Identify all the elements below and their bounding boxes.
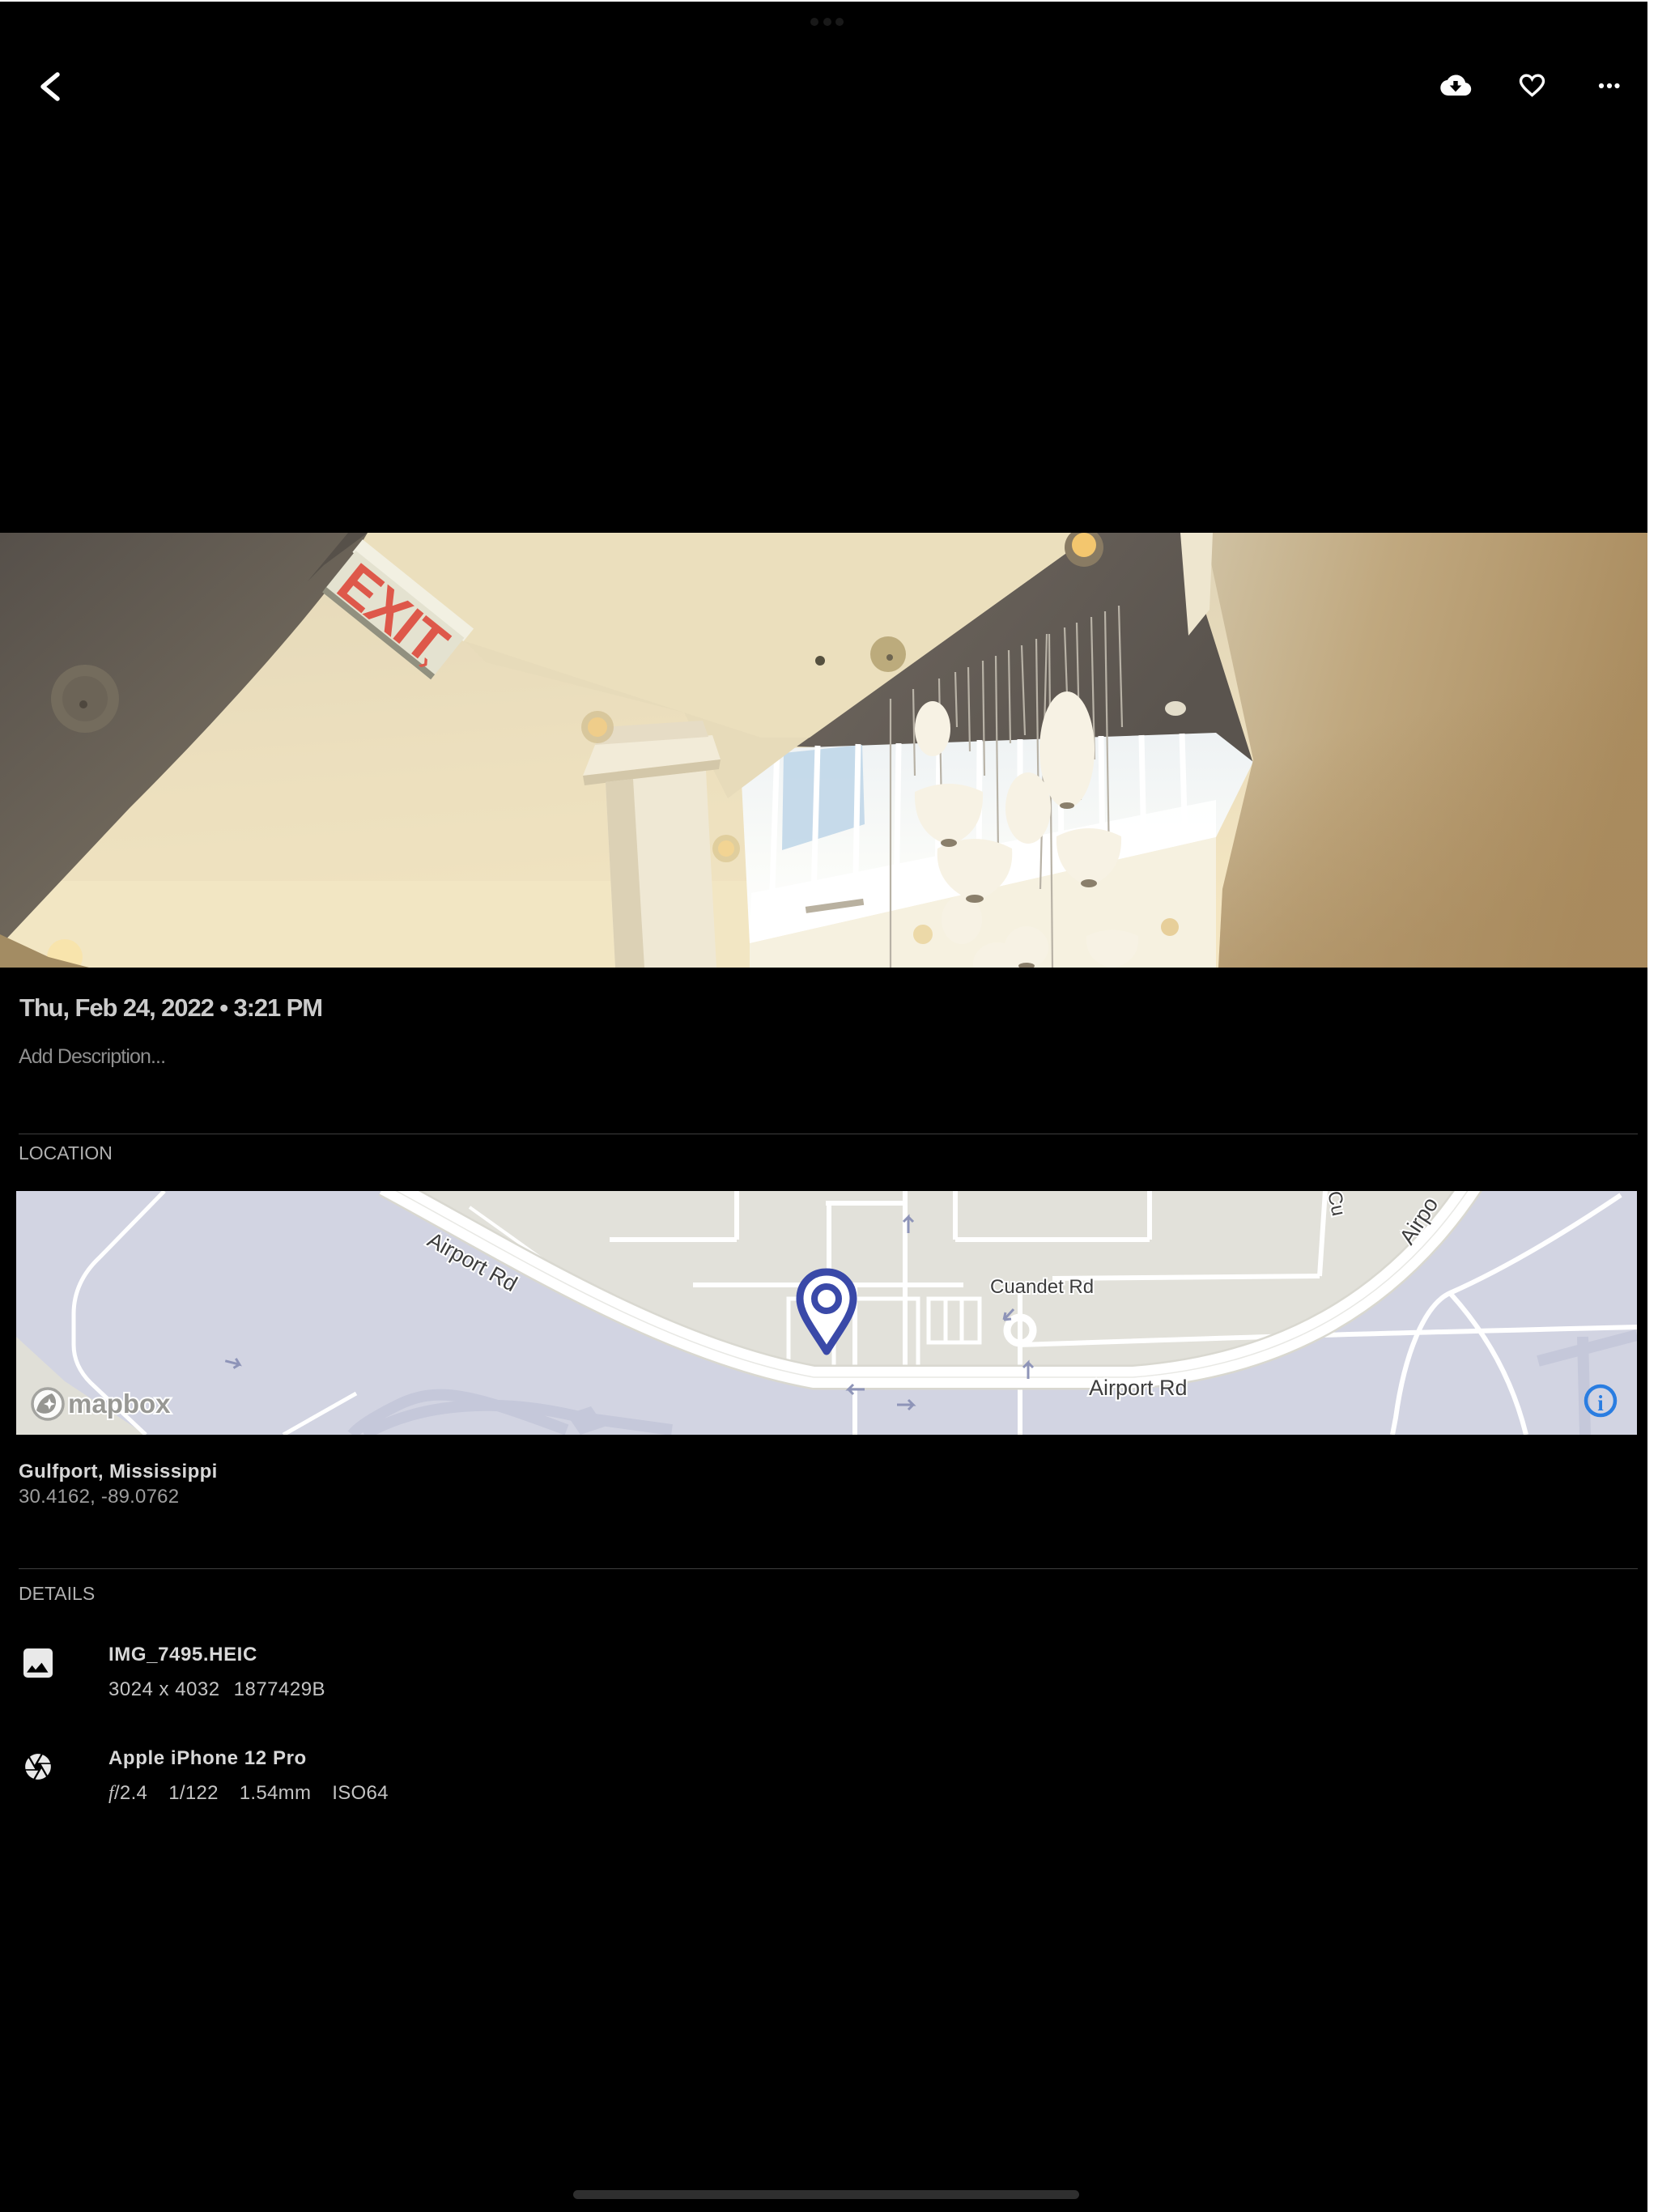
svg-text:i: i: [1597, 1391, 1604, 1415]
svg-text:mapbox: mapbox: [68, 1389, 171, 1419]
svg-text:Cuandet Rd: Cuandet Rd: [990, 1276, 1094, 1298]
svg-text:Airport Rd: Airport Rd: [1089, 1376, 1188, 1400]
